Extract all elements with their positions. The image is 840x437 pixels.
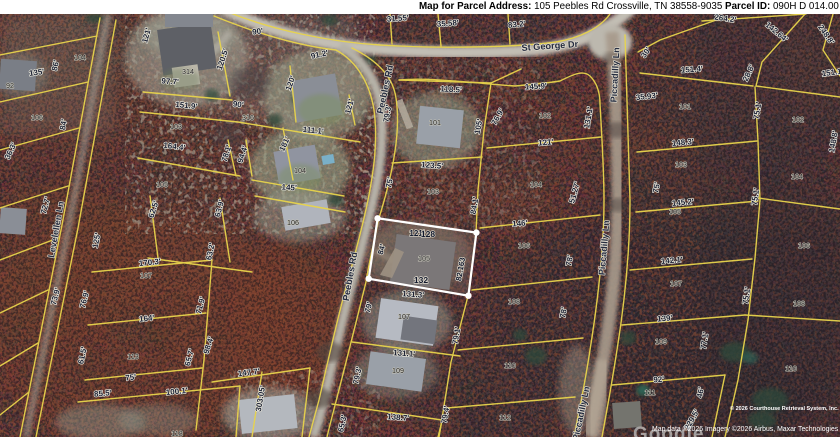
svg-text:112: 112	[499, 413, 510, 422]
svg-text:104: 104	[791, 172, 803, 181]
svg-text:105: 105	[418, 254, 430, 263]
svg-text:104: 104	[530, 180, 542, 189]
svg-text:107: 107	[398, 312, 410, 321]
svg-text:132: 132	[414, 275, 428, 285]
svg-text:90': 90'	[232, 99, 244, 109]
svg-text:106: 106	[798, 241, 810, 250]
svg-text:110: 110	[785, 364, 796, 373]
svg-text:107: 107	[670, 279, 682, 288]
svg-text:118.5': 118.5'	[440, 84, 462, 94]
svg-text:128: 128	[421, 229, 435, 239]
svg-text:109: 109	[655, 337, 667, 346]
svg-text:© 2026 Courthouse Retrieval Sy: © 2026 Courthouse Retrieval System, Inc.	[730, 405, 839, 412]
svg-text:145': 145'	[281, 182, 297, 192]
svg-text:123.5': 123.5'	[421, 160, 444, 171]
svg-text:314: 314	[182, 67, 194, 76]
svg-text:103: 103	[427, 187, 439, 196]
svg-text:Map data ©2026 Imagery ©2026 A: Map data ©2026 Imagery ©2026 Airbus, Max…	[652, 425, 839, 433]
svg-text:83.2': 83.2'	[508, 19, 526, 30]
svg-text:111: 111	[645, 388, 656, 397]
svg-text:164': 164'	[139, 313, 155, 324]
svg-text:145.9': 145.9'	[525, 81, 547, 91]
svg-text:90': 90'	[252, 26, 264, 36]
svg-text:103: 103	[675, 160, 687, 169]
svg-text:105: 105	[156, 180, 168, 189]
svg-text:84': 84'	[58, 118, 69, 130]
svg-text:92: 92	[6, 81, 14, 90]
svg-text:35.58': 35.58'	[437, 18, 460, 29]
svg-text:131.3': 131.3'	[402, 289, 425, 300]
svg-text:142.1': 142.1'	[660, 255, 683, 266]
svg-text:75': 75'	[384, 176, 395, 188]
svg-text:101: 101	[429, 118, 441, 127]
svg-text:105: 105	[669, 207, 681, 216]
svg-text:151.4': 151.4'	[681, 64, 704, 75]
svg-text:106: 106	[31, 113, 43, 122]
svg-text:107: 107	[140, 271, 152, 280]
svg-text:85.5': 85.5'	[94, 388, 112, 398]
svg-text:78': 78'	[564, 254, 575, 266]
svg-text:106: 106	[518, 241, 530, 250]
svg-text:138.7': 138.7'	[387, 412, 410, 423]
svg-text:104: 104	[74, 53, 86, 62]
svg-text:75': 75'	[651, 181, 662, 193]
svg-text:316: 316	[242, 113, 254, 122]
svg-text:108: 108	[793, 299, 805, 308]
svg-text:118: 118	[171, 429, 182, 437]
svg-text:78': 78'	[558, 306, 569, 318]
svg-text:110: 110	[504, 361, 515, 370]
svg-text:121': 121'	[538, 137, 554, 147]
svg-text:103: 103	[170, 122, 182, 131]
svg-text:102: 102	[539, 111, 551, 120]
svg-text:104: 104	[294, 166, 306, 175]
svg-text:139': 139'	[657, 313, 673, 323]
svg-text:97.7': 97.7'	[161, 76, 179, 86]
svg-text:46': 46'	[695, 386, 706, 398]
svg-text:113: 113	[127, 352, 138, 361]
svg-text:92': 92'	[653, 375, 665, 385]
svg-text:108: 108	[508, 297, 520, 306]
svg-text:31.55': 31.55'	[387, 13, 410, 24]
svg-text:131.1': 131.1'	[393, 348, 416, 359]
svg-text:101: 101	[679, 102, 691, 111]
svg-text:148.3': 148.3'	[671, 137, 694, 148]
svg-text:146': 146'	[512, 218, 528, 228]
svg-text:102: 102	[792, 115, 804, 124]
svg-text:109: 109	[392, 366, 404, 375]
svg-text:106: 106	[287, 218, 299, 227]
svg-text:75': 75'	[125, 372, 137, 382]
